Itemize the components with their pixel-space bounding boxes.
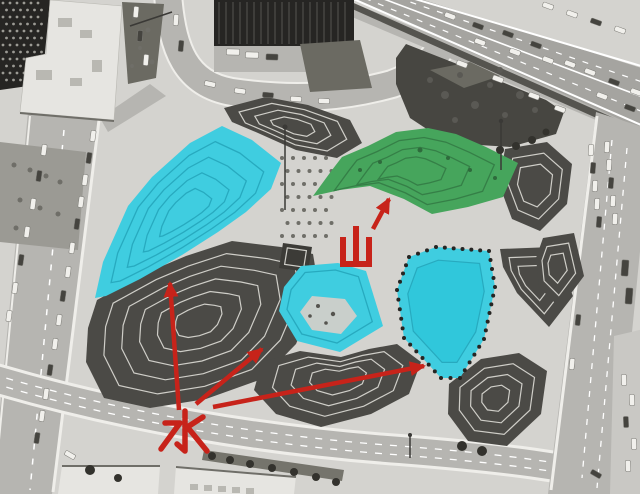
- street-trees: [208, 452, 216, 460]
- car: [226, 49, 239, 55]
- mountain-trees: [493, 176, 497, 180]
- dirt-speckle: [516, 91, 524, 99]
- car: [610, 195, 616, 206]
- plaza-tree-grid: [324, 234, 328, 238]
- waffle-facade-pattern: [16, 44, 19, 47]
- dirt-speckle: [471, 101, 479, 109]
- waffle-facade-pattern: [23, 44, 26, 47]
- waffle-facade-pattern: [40, 9, 43, 12]
- car: [608, 177, 614, 188]
- waffle-facade-pattern: [37, 2, 40, 5]
- waffle-facade-pattern: [12, 51, 15, 54]
- plaza-tree-grid: [280, 208, 284, 212]
- waffle-facade-pattern: [37, 30, 40, 33]
- car: [569, 358, 575, 369]
- car: [178, 40, 184, 51]
- quiet-pool-tree-ring: [477, 345, 481, 349]
- plaza-tree-grid: [313, 234, 317, 238]
- waffle-facade-pattern: [9, 44, 12, 47]
- waffle-facade-pattern: [19, 37, 22, 40]
- waffle-facade-pattern: [40, 37, 43, 40]
- quiet-pool-tree-ring: [414, 349, 418, 353]
- street-trees: [457, 441, 467, 451]
- quiet-pool-tree-ring: [490, 267, 494, 271]
- rooftop-unit: [80, 30, 92, 38]
- street-trees: [268, 464, 276, 472]
- waffle-facade-pattern: [5, 9, 8, 12]
- waffle-facade-pattern: [30, 44, 33, 47]
- construction-annex: [300, 40, 372, 92]
- dirt-speckle: [427, 77, 433, 83]
- car: [137, 30, 143, 41]
- street-trees: [512, 142, 520, 150]
- plaza-tree-grid: [324, 156, 328, 160]
- quiet-pool-tree-ring: [408, 343, 412, 347]
- waffle-facade-pattern: [2, 58, 5, 61]
- waffle-facade-pattern: [9, 2, 12, 5]
- quiet-pool-tree-ring: [484, 328, 488, 332]
- waffle-facade-pattern: [33, 9, 36, 12]
- island-rocks: [324, 321, 328, 325]
- car: [245, 52, 258, 58]
- quiet-pool-tree-ring: [416, 252, 420, 256]
- street-trees: [226, 456, 234, 464]
- quiet-pool-tree-ring: [486, 320, 490, 324]
- car: [318, 98, 329, 104]
- dirt-speckle: [441, 91, 449, 99]
- construction-clutter: [146, 28, 151, 33]
- quiet-pool-tree-ring: [425, 248, 429, 252]
- waffle-facade-pattern: [23, 58, 26, 61]
- plaza-tree-grid: [319, 195, 323, 199]
- quiet-pool-tree-ring: [489, 302, 493, 306]
- car: [621, 374, 626, 385]
- dirt-speckle: [487, 82, 493, 88]
- construction-clutter: [130, 64, 134, 68]
- dirt-speckle: [532, 107, 538, 113]
- construction-clutter: [150, 60, 155, 65]
- quiet-pool-tree-ring: [493, 285, 497, 289]
- rooftop-unit: [70, 78, 82, 86]
- car: [592, 180, 598, 191]
- roof-vents: [56, 212, 61, 217]
- plaza-tree-grid: [324, 208, 328, 212]
- waffle-facade-pattern: [23, 30, 26, 33]
- waffle-facade-pattern: [16, 58, 19, 61]
- waffle-facade-pattern: [16, 16, 19, 19]
- waffle-facade-pattern: [5, 37, 8, 40]
- waffle-facade-pattern: [12, 9, 15, 12]
- quiet-pool-tree-ring: [469, 248, 473, 252]
- roof-vents: [14, 226, 19, 231]
- car: [631, 438, 636, 449]
- waffle-facade-pattern: [37, 44, 40, 47]
- plaza-tree-grid: [297, 221, 301, 225]
- plaza-tree-grid: [308, 195, 312, 199]
- roof-vents: [12, 163, 17, 168]
- quiet-pool-tree-ring: [463, 368, 467, 372]
- quiet-pool-tree-ring: [399, 317, 403, 321]
- car: [143, 54, 149, 65]
- waffle-facade-pattern: [19, 79, 22, 82]
- street-trees: [332, 478, 340, 486]
- plaza-tree-grid: [302, 234, 306, 238]
- street-trees: [528, 136, 536, 144]
- rooftop-unit: [36, 70, 52, 80]
- plaza-tree-grid: [280, 156, 284, 160]
- waffle-facade-pattern: [19, 51, 22, 54]
- quiet-pool-tree-ring: [489, 258, 493, 262]
- quiet-pool-tree-ring: [396, 298, 400, 302]
- waffle-facade-pattern: [12, 37, 15, 40]
- street-trees: [312, 473, 320, 481]
- quiet-pool-tree-ring: [487, 249, 491, 253]
- street-trees: [246, 460, 254, 468]
- plaza-tree-grid: [286, 169, 290, 173]
- quiet-pool-tree-ring: [488, 311, 492, 315]
- plaza-tree-grid: [291, 234, 295, 238]
- plaza-tree-grid: [302, 156, 306, 160]
- dark-tower: [214, 0, 354, 46]
- waffle-facade-pattern: [9, 72, 12, 75]
- convention-roof-west: [58, 466, 160, 494]
- mountain-trees: [378, 160, 382, 164]
- waffle-facade-pattern: [26, 51, 29, 54]
- car: [588, 144, 594, 155]
- waffle-facade-pattern: [37, 16, 40, 19]
- dirt-speckle: [457, 72, 463, 78]
- annotated-aerial-photo: 山 水: [0, 0, 640, 494]
- waffle-facade-pattern: [33, 23, 36, 26]
- quiet-pool-tree-ring: [433, 369, 437, 373]
- parking-lot: [610, 328, 640, 494]
- plaza-tree-grid: [313, 182, 317, 186]
- quiet-pool-tree-ring: [491, 294, 495, 298]
- mountain-trees: [358, 168, 362, 172]
- island-rocks: [331, 312, 335, 316]
- plaza-tree-grid: [330, 221, 334, 225]
- car: [623, 416, 628, 427]
- car: [604, 141, 610, 152]
- waffle-facade-pattern: [12, 65, 15, 68]
- plaza-tree-grid: [313, 208, 317, 212]
- plaza-tree-grid: [308, 221, 312, 225]
- quiet-pool-tree-ring: [452, 246, 456, 250]
- quiet-pool-tree-ring: [404, 263, 408, 267]
- car: [262, 92, 273, 98]
- rooftop-unit: [246, 488, 254, 494]
- dirt-speckle: [497, 67, 503, 73]
- light-pole-head: [499, 119, 503, 123]
- waffle-facade-pattern: [23, 2, 26, 5]
- waffle-facade-pattern: [19, 23, 22, 26]
- dirt-speckle: [502, 112, 508, 118]
- waffle-facade-pattern: [40, 23, 43, 26]
- quiet-pool-tree-ring: [439, 376, 443, 380]
- plaza-tree-grid: [319, 169, 323, 173]
- waffle-facade-pattern: [12, 79, 15, 82]
- waffle-facade-pattern: [33, 51, 36, 54]
- quiet-pool-tree-ring: [427, 363, 431, 367]
- quiet-pool-tree-ring: [395, 288, 399, 292]
- light-pole-head: [283, 125, 288, 130]
- quiet-pool-tree-ring: [398, 307, 402, 311]
- car: [621, 260, 629, 276]
- car: [596, 216, 602, 227]
- quiet-pool-tree-ring: [458, 376, 462, 380]
- car: [629, 394, 634, 405]
- quiet-pool-tree-ring: [461, 247, 465, 251]
- rooftop-unit: [232, 487, 240, 493]
- plaza-tree-grid: [297, 169, 301, 173]
- waffle-facade-pattern: [2, 16, 5, 19]
- waffle-facade-pattern: [9, 30, 12, 33]
- waffle-facade-pattern: [19, 65, 22, 68]
- car: [575, 314, 581, 325]
- rooftop-unit: [92, 60, 102, 72]
- quiet-pool-tree-ring: [478, 248, 482, 252]
- plaza-tree-grid: [313, 156, 317, 160]
- car: [266, 54, 278, 60]
- waffle-facade-pattern: [9, 58, 12, 61]
- rooftop-unit: [58, 18, 72, 27]
- car: [625, 460, 630, 471]
- waffle-facade-pattern: [12, 23, 15, 26]
- street-trees: [496, 146, 504, 154]
- plaza-tree-grid: [330, 195, 334, 199]
- waffle-facade-pattern: [2, 44, 5, 47]
- waffle-facade-pattern: [16, 30, 19, 33]
- quiet-pool-tree-ring: [402, 336, 406, 340]
- dirt-speckle: [452, 117, 458, 123]
- rooftop-unit: [218, 486, 226, 492]
- aerial-photo-canvas: [0, 0, 640, 494]
- waffle-facade-pattern: [5, 79, 8, 82]
- car: [133, 6, 139, 17]
- roof-vents: [38, 206, 43, 211]
- car: [625, 288, 633, 304]
- waffle-facade-pattern: [33, 37, 36, 40]
- quiet-pool-tree-ring: [449, 376, 453, 380]
- car: [173, 14, 179, 25]
- waffle-facade-pattern: [2, 72, 5, 75]
- construction-clutter: [138, 46, 142, 50]
- plaza-tree-grid: [280, 234, 284, 238]
- waffle-facade-pattern: [26, 23, 29, 26]
- car: [290, 96, 301, 102]
- waffle-facade-pattern: [5, 51, 8, 54]
- street-trees: [477, 446, 487, 456]
- street-trees: [85, 465, 95, 475]
- mountain-trees: [468, 168, 472, 172]
- rooftop-unit: [204, 485, 212, 491]
- car: [594, 198, 600, 209]
- car: [606, 159, 612, 170]
- plaza-tree-grid: [308, 169, 312, 173]
- street-trees: [290, 468, 298, 476]
- waffle-facade-pattern: [23, 16, 26, 19]
- plaza-tree-grid: [286, 195, 290, 199]
- plaza-tree-grid: [291, 182, 295, 186]
- waffle-facade-pattern: [26, 9, 29, 12]
- quiet-pool-tree-ring: [401, 326, 405, 330]
- quiet-pool-tree-ring: [434, 245, 438, 249]
- street-trees: [543, 129, 550, 136]
- car: [612, 213, 618, 224]
- quiet-pool-tree-ring: [407, 255, 411, 259]
- mountain-trees: [418, 148, 423, 153]
- plaza-tree-grid: [302, 182, 306, 186]
- roof-vents: [58, 180, 63, 185]
- island-rocks: [308, 314, 312, 318]
- roof-vents: [44, 174, 49, 179]
- island-rocks: [316, 304, 320, 308]
- quiet-pool-tree-ring: [421, 356, 425, 360]
- waffle-facade-pattern: [19, 9, 22, 12]
- quiet-pool-tree-ring: [443, 246, 447, 250]
- plaza-tree-grid: [297, 195, 301, 199]
- waffle-facade-pattern: [30, 16, 33, 19]
- plaza-tree-grid: [280, 182, 284, 186]
- waffle-facade-pattern: [16, 72, 19, 75]
- plaza-tree-grid: [319, 221, 323, 225]
- plaza-tree-grid: [291, 156, 295, 160]
- waffle-facade-pattern: [30, 30, 33, 33]
- car: [590, 162, 596, 173]
- waffle-facade-pattern: [9, 16, 12, 19]
- low-building-west: [0, 142, 86, 250]
- light-pole-head: [408, 433, 412, 437]
- plaza-tree-grid: [291, 208, 295, 212]
- waffle-facade-pattern: [5, 23, 8, 26]
- waffle-facade-pattern: [5, 65, 8, 68]
- waffle-facade-pattern: [16, 2, 19, 5]
- mountain-trees: [446, 156, 450, 160]
- waffle-facade-pattern: [30, 2, 33, 5]
- waffle-facade-pattern: [2, 2, 5, 5]
- plaza-tree-grid: [286, 221, 290, 225]
- quiet-pool-tree-ring: [492, 276, 496, 280]
- quiet-pool-tree-ring: [468, 360, 472, 364]
- roof-vents: [18, 198, 23, 203]
- waffle-facade-pattern: [26, 37, 29, 40]
- quiet-pool-tree-ring: [401, 272, 405, 276]
- quiet-pool-tree-ring: [472, 353, 476, 357]
- waffle-facade-pattern: [2, 30, 5, 33]
- roof-vents: [28, 168, 33, 173]
- waffle-facade-pattern: [40, 51, 43, 54]
- quiet-pool-tree-ring: [398, 280, 402, 284]
- quiet-pool-tree-ring: [482, 337, 486, 341]
- street-trees: [114, 474, 122, 482]
- rooftop-unit: [190, 484, 198, 490]
- plaza-tree-grid: [302, 208, 306, 212]
